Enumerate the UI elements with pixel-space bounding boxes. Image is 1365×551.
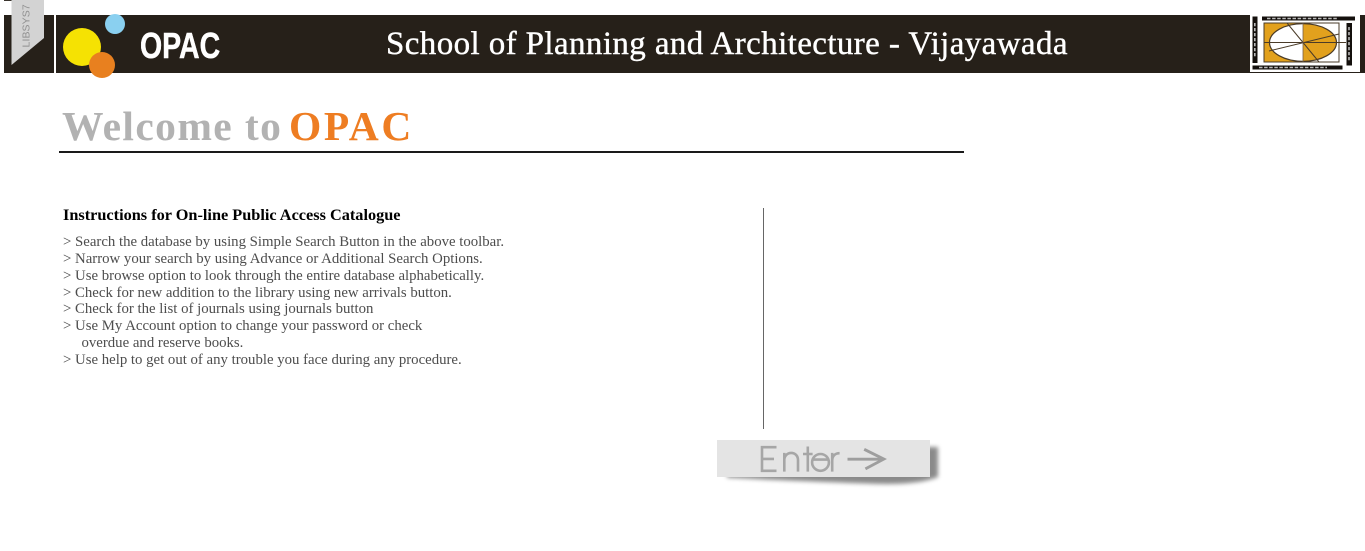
svg-text:LIBSYS7: LIBSYS7 — [21, 4, 33, 47]
